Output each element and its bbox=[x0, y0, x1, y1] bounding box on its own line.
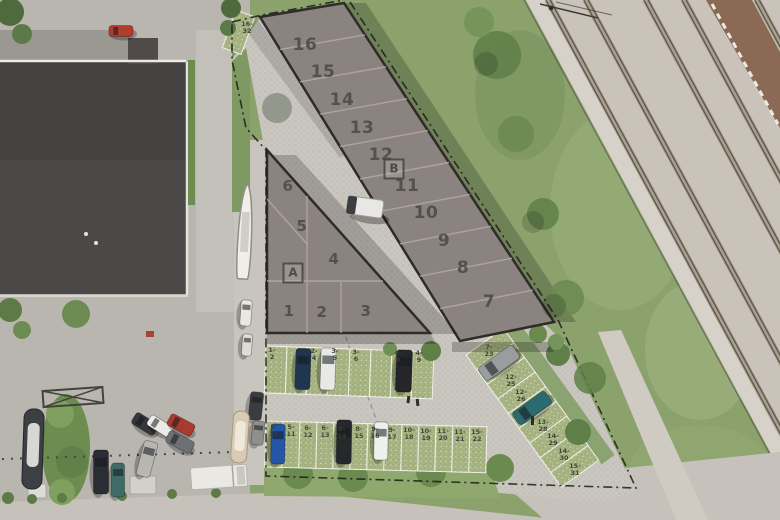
bush bbox=[13, 321, 31, 339]
parking-stall bbox=[401, 425, 419, 471]
tree bbox=[12, 24, 32, 44]
section-box-a: A bbox=[283, 263, 304, 284]
car-body bbox=[271, 424, 286, 464]
parking-stall bbox=[264, 346, 287, 394]
boat bbox=[230, 411, 250, 464]
car-windshield bbox=[376, 429, 387, 437]
hedge-strip bbox=[188, 60, 195, 205]
car-windshield bbox=[322, 355, 334, 364]
car-windshield bbox=[244, 338, 251, 343]
car-body bbox=[109, 26, 133, 37]
parking-stall bbox=[418, 425, 436, 471]
bush bbox=[27, 494, 37, 504]
hedge bbox=[56, 446, 88, 478]
parking-stall bbox=[316, 422, 334, 468]
bush bbox=[2, 492, 14, 504]
car bbox=[90, 450, 109, 498]
person bbox=[531, 416, 534, 425]
parking-stall bbox=[350, 423, 368, 469]
west-access-road bbox=[196, 30, 234, 312]
tree bbox=[383, 342, 397, 356]
box-truck bbox=[190, 464, 247, 490]
small-red-object bbox=[146, 331, 154, 337]
car-body bbox=[112, 463, 125, 497]
parking-stall bbox=[299, 422, 317, 468]
skylight bbox=[94, 241, 98, 245]
car-windshield bbox=[273, 431, 284, 439]
shed bbox=[130, 476, 156, 494]
aerial-site-plan: 16 15 14 13 12 11 10 9 8 7 6 5 4 1 2 3 A… bbox=[0, 0, 780, 520]
car-body bbox=[240, 300, 253, 327]
bush bbox=[486, 454, 514, 482]
car bbox=[108, 463, 125, 501]
car-body bbox=[94, 450, 109, 494]
mast-base bbox=[549, 6, 554, 11]
car-body bbox=[248, 391, 264, 420]
tree bbox=[565, 419, 591, 445]
car-windshield bbox=[254, 425, 263, 431]
bush bbox=[211, 488, 221, 498]
parking-stall bbox=[469, 426, 487, 472]
bush bbox=[62, 300, 90, 328]
section-box-b: B bbox=[384, 159, 405, 180]
car-windshield bbox=[95, 458, 107, 467]
car bbox=[109, 26, 137, 41]
site-plan-canvas bbox=[0, 0, 780, 520]
car-body bbox=[395, 350, 412, 393]
parking-stall bbox=[348, 349, 371, 397]
car-windshield bbox=[251, 397, 262, 404]
building-a-shadow bbox=[267, 333, 436, 344]
skylight bbox=[84, 232, 88, 236]
car-body bbox=[241, 334, 253, 357]
car-body bbox=[336, 420, 352, 464]
car-windshield bbox=[398, 357, 411, 366]
car-windshield bbox=[242, 304, 250, 310]
parking-stall bbox=[369, 350, 392, 398]
car-windshield bbox=[338, 428, 350, 437]
parking-stall bbox=[435, 425, 453, 471]
bush bbox=[167, 489, 177, 499]
car-windshield bbox=[297, 356, 309, 365]
tree bbox=[262, 93, 292, 123]
bush bbox=[57, 493, 67, 503]
car-windshield bbox=[113, 27, 118, 35]
car-windshield bbox=[113, 469, 123, 476]
car-body bbox=[295, 348, 311, 389]
warehouse bbox=[0, 30, 195, 296]
parking-stall bbox=[452, 426, 470, 472]
car-body bbox=[251, 420, 265, 445]
car-body bbox=[320, 348, 336, 390]
boat bbox=[22, 409, 45, 490]
car-body bbox=[374, 422, 389, 460]
warehouse-roof-sheen bbox=[0, 160, 186, 294]
